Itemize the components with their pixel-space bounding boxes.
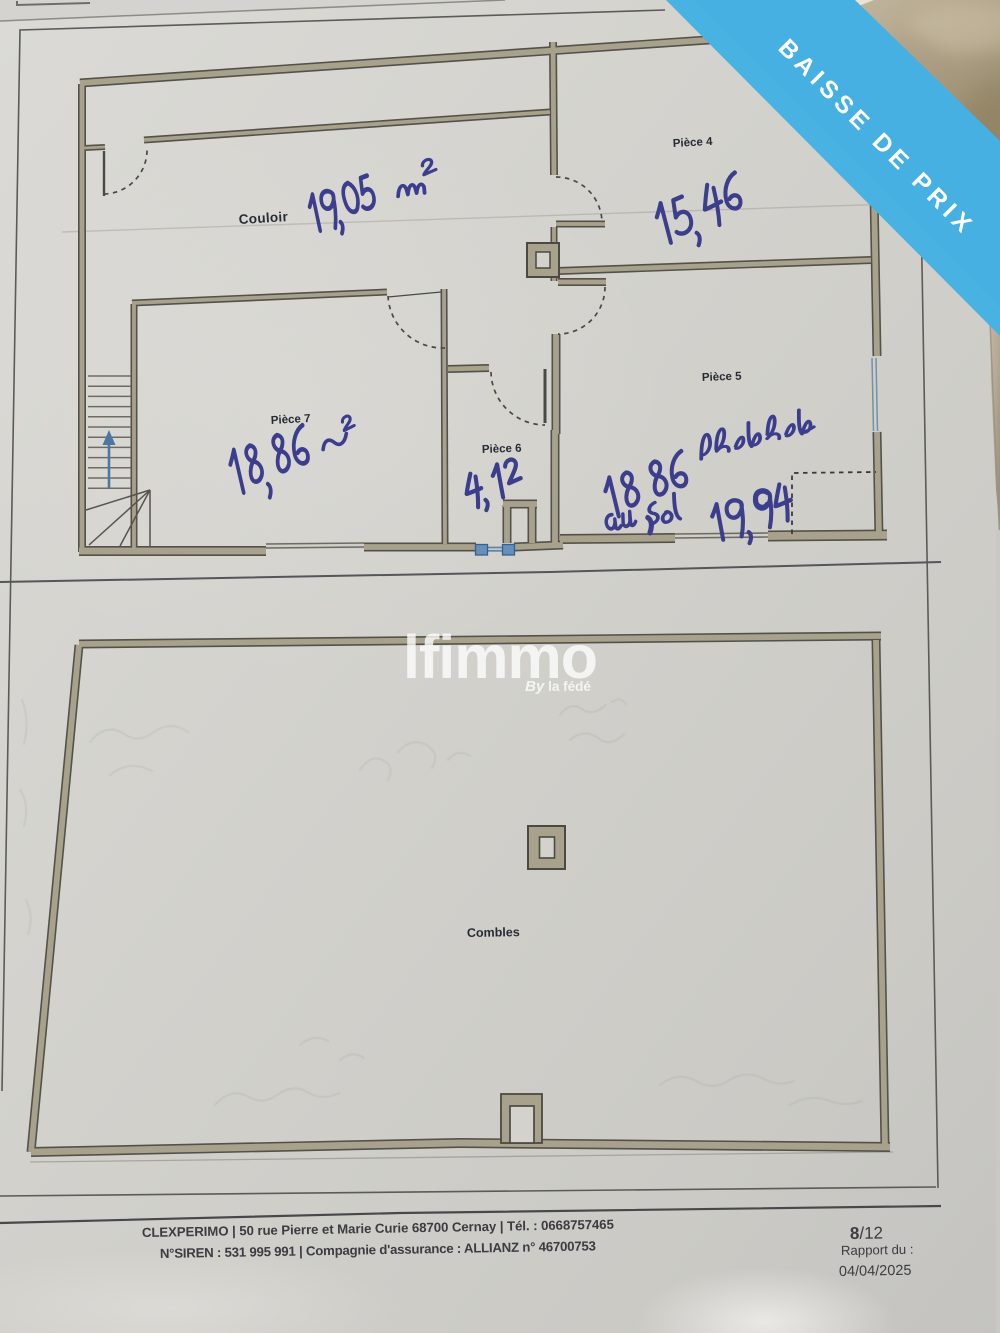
svg-text:Pièce 4: Pièce 4	[673, 136, 714, 150]
svg-text:Couloir: Couloir	[238, 209, 289, 227]
svg-text:Rapport du :: Rapport du :	[841, 1242, 914, 1258]
svg-text:Pièce 5: Pièce 5	[702, 371, 743, 384]
svg-text:By la fédé: By la fédé	[525, 678, 591, 695]
svg-text:Combles: Combles	[467, 925, 520, 940]
svg-text:8/12: 8/12	[850, 1223, 883, 1243]
svg-text:Pièce 6: Pièce 6	[482, 443, 522, 456]
svg-text:04/04/2025: 04/04/2025	[839, 1263, 912, 1280]
svg-text:Pièce 7: Pièce 7	[271, 413, 311, 427]
